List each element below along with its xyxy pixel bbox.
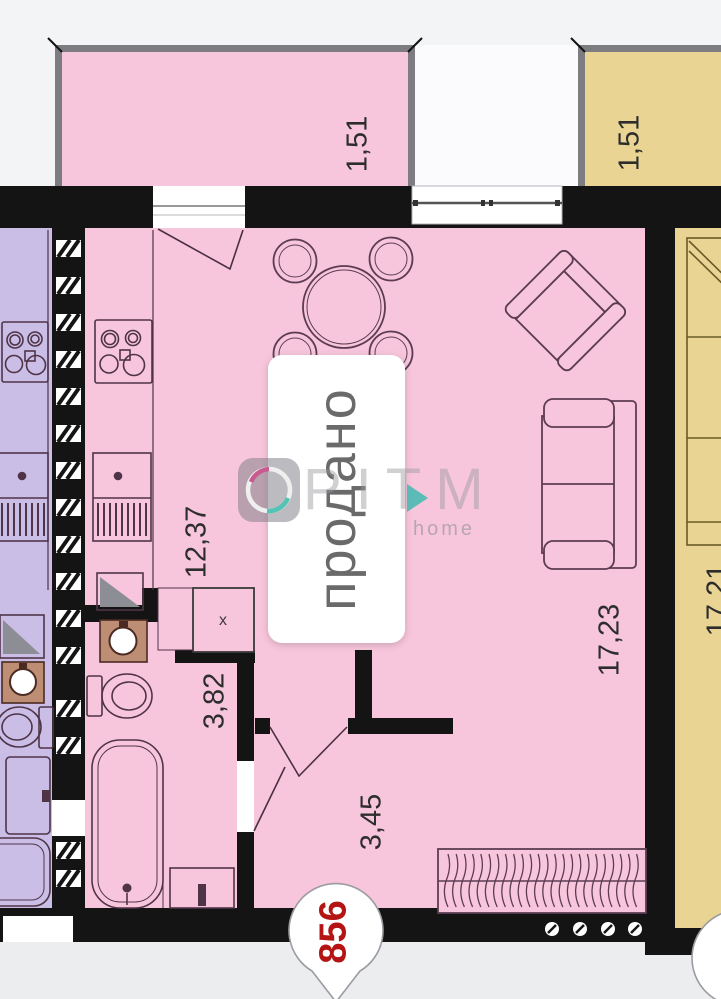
sofa xyxy=(542,399,636,569)
bed-right xyxy=(687,238,721,545)
unit-number[interactable]: 856 xyxy=(313,900,356,963)
gap-between-balconies xyxy=(412,45,578,186)
dim-balcony-left: 1,51 xyxy=(342,116,375,172)
facade-window xyxy=(412,186,562,224)
dim-kitchen-living: 12,37 xyxy=(181,506,214,579)
washbasin-left xyxy=(2,662,44,703)
left-wall-opening xyxy=(52,800,85,836)
watermark-tagline: home xyxy=(413,518,475,541)
balcony-door-window xyxy=(153,186,245,228)
dim-living-room: 17,23 xyxy=(594,604,627,677)
vent-mark: x xyxy=(219,612,227,630)
dim-balcony-right: 1,51 xyxy=(614,115,647,171)
dim-hallway: 3,45 xyxy=(356,794,389,850)
watermark-logo-icon xyxy=(238,458,300,522)
washbasin xyxy=(100,620,147,662)
dim-bathroom: 3,82 xyxy=(199,673,232,729)
bathroom-door-opening xyxy=(237,761,254,832)
floor-plan: 1,51 1,51 12,37 3,82 3,45 17,23 17,21 x … xyxy=(0,0,721,999)
kitchen-door-opening xyxy=(270,718,348,734)
watermark-brand-text: РІТМ xyxy=(303,460,498,520)
wardrobe xyxy=(438,849,646,913)
dim-adjacent-room: 17,21 xyxy=(702,564,721,637)
watermark-play-icon xyxy=(407,484,428,512)
neighbor-apartment-left xyxy=(0,228,52,908)
neighbor-left-window xyxy=(3,916,73,942)
